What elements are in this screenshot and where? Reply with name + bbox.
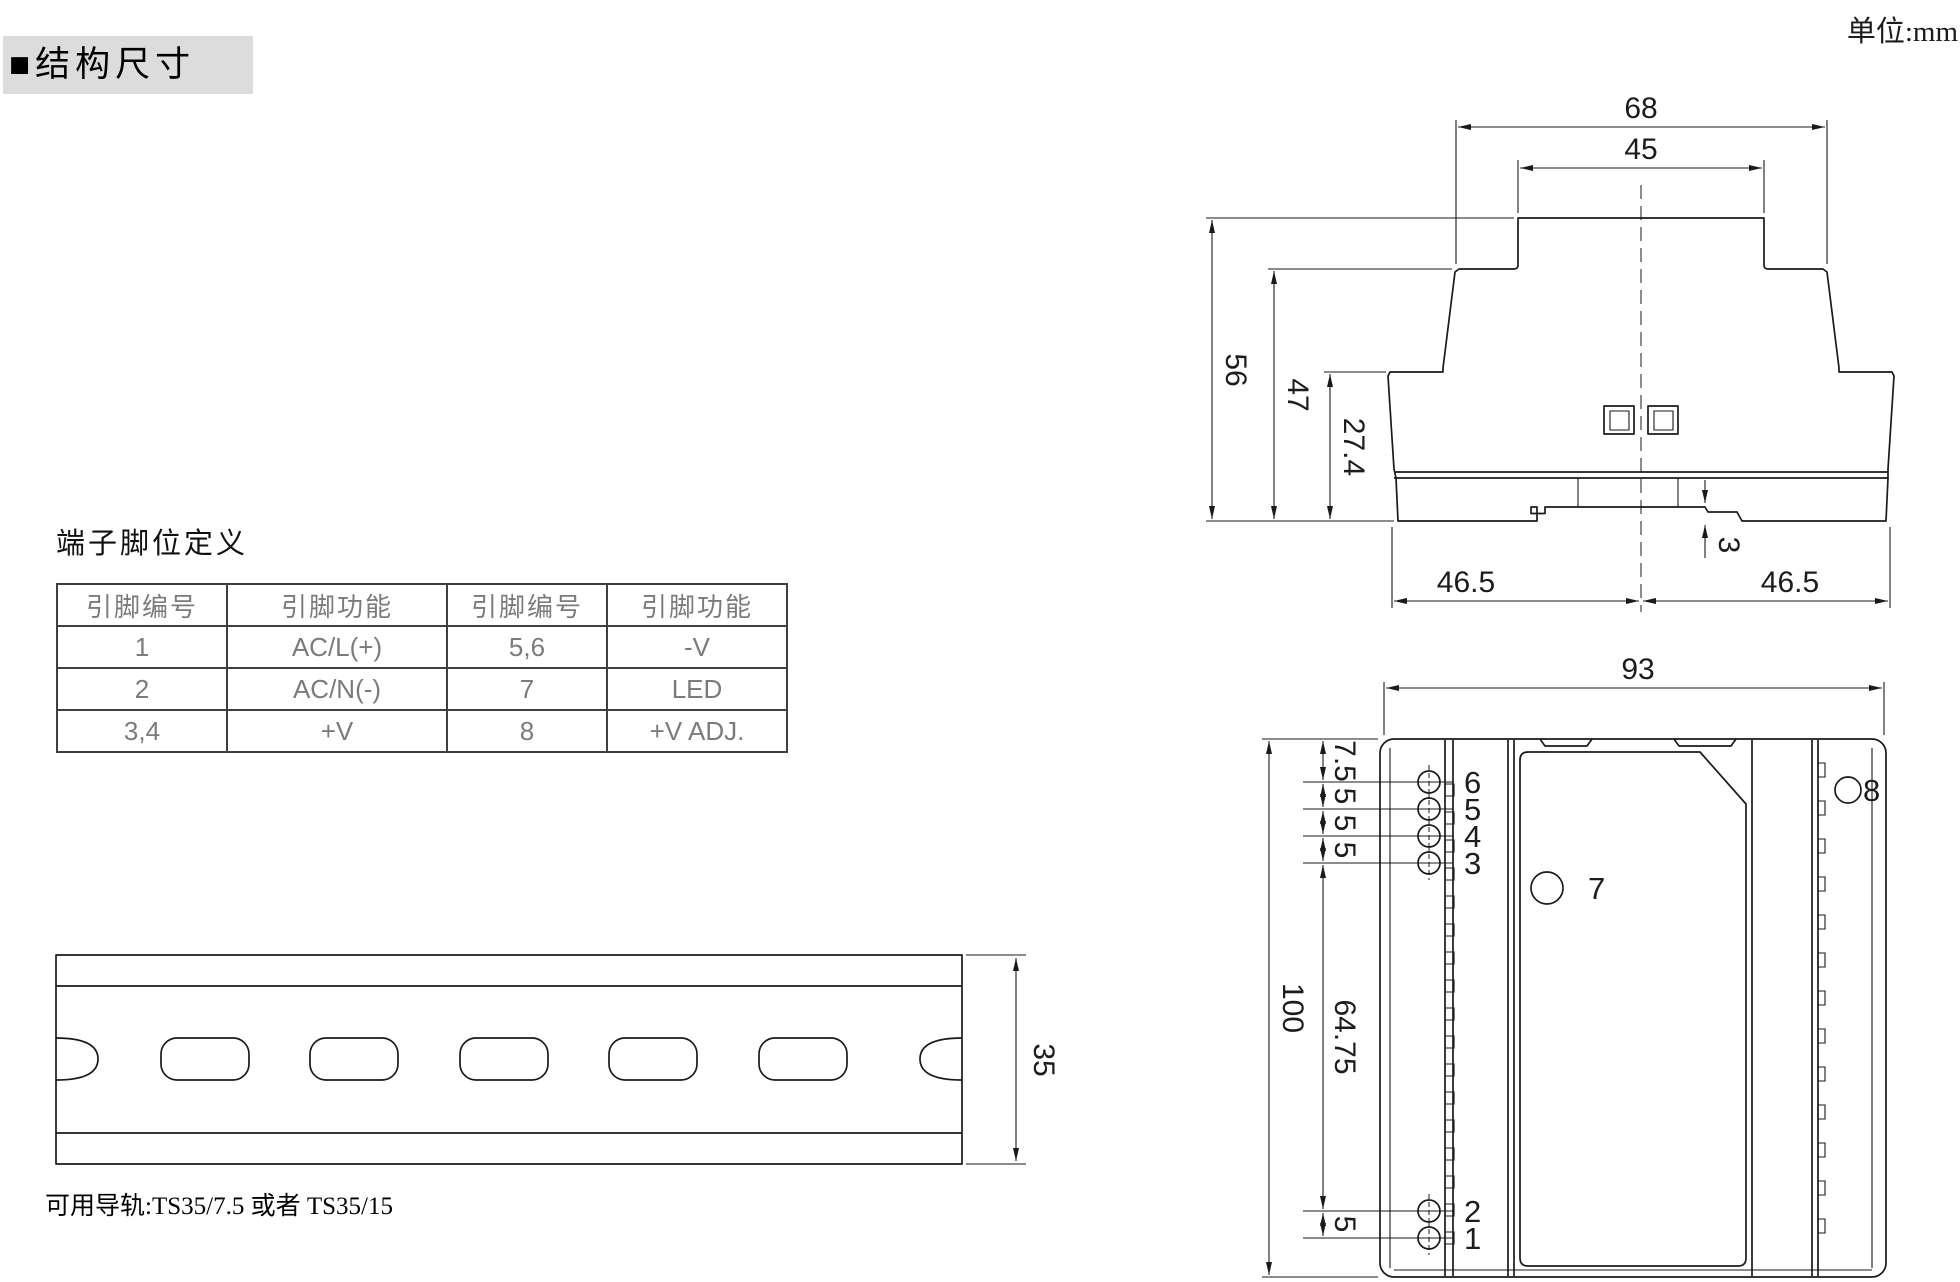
pin-label-1: 1	[1464, 1221, 1481, 1256]
vent-slot	[1818, 1219, 1825, 1233]
label-panel	[1520, 752, 1746, 1266]
rail-slots	[161, 1038, 847, 1080]
top-view-dimensions: 68 45 56 47 27.4 3 46.5	[1206, 92, 1890, 608]
table-row: 2 AC/N(-) 7 LED	[57, 668, 787, 710]
led-indicator-circle	[1531, 872, 1563, 904]
vent-slots	[1818, 763, 1825, 1233]
pin-number-cell: 8	[447, 710, 607, 752]
side-view-body	[1380, 739, 1886, 1277]
din-rail-drawing: 35	[0, 930, 1100, 1180]
col-header: 引脚编号	[447, 584, 607, 626]
dim-5a: 5	[1328, 788, 1361, 805]
vent-slot	[1818, 991, 1825, 1005]
dim-7-5: 7.5	[1328, 740, 1361, 782]
pin-function-cell: -V	[607, 626, 787, 668]
vent-slot	[1818, 953, 1825, 967]
rail-dimension-35: 35	[966, 955, 1060, 1164]
vent-slot	[1818, 839, 1825, 853]
vent-slot	[1818, 1143, 1825, 1157]
top-notch-right	[1674, 739, 1736, 746]
pin-function-cell: LED	[607, 668, 787, 710]
dim-27-4: 27.4	[1337, 418, 1370, 476]
dim-5d: 5	[1328, 1216, 1361, 1233]
rail-height-dim: 35	[1027, 1043, 1060, 1076]
rail-slot	[609, 1038, 697, 1080]
top-view-body	[1388, 185, 1894, 612]
dim-5c: 5	[1328, 842, 1361, 859]
terminal-screws	[1412, 765, 1446, 1255]
pin-number-cell: 2	[57, 668, 227, 710]
section-heading: ■结构尺寸	[3, 36, 253, 94]
rail-profile	[56, 955, 962, 1164]
vadj-circle	[1835, 777, 1861, 803]
top-notch-left	[1540, 739, 1592, 746]
pin-number-cell: 1	[57, 626, 227, 668]
side-view-drawing: 6 5 4 3 2 1 7 8 93 100	[1240, 635, 1960, 1282]
vent-slot	[1818, 1181, 1825, 1195]
pin-label-7: 7	[1588, 871, 1605, 906]
rail-slot	[161, 1038, 249, 1080]
case-outline	[1380, 739, 1886, 1277]
dim-5b: 5	[1328, 815, 1361, 832]
pin-number-cell: 5,6	[447, 626, 607, 668]
dim-100: 100	[1276, 983, 1309, 1033]
pin-function-cell: AC/N(-)	[227, 668, 447, 710]
structure-dimensions-page: ■结构尺寸 单位:mm 端子脚位定义 引脚编号 引脚功能 引脚编号 引脚功能 1…	[0, 0, 1960, 1282]
pin-definition-table: 引脚编号 引脚功能 引脚编号 引脚功能 1 AC/L(+) 5,6 -V 2 A…	[56, 583, 788, 753]
vent-slot	[1818, 1105, 1825, 1119]
dim-56: 56	[1219, 353, 1252, 386]
unit-label: 单位:mm	[1808, 8, 1958, 42]
rail-slot	[460, 1038, 548, 1080]
pin-function-cell: +V	[227, 710, 447, 752]
rail-slot	[759, 1038, 847, 1080]
rail-edge-notch-left	[56, 1038, 98, 1080]
pin-number-cell: 7	[447, 668, 607, 710]
pin-function-cell: AC/L(+)	[227, 626, 447, 668]
dim-68: 68	[1624, 92, 1657, 125]
vent-slot	[1818, 763, 1825, 777]
col-header: 引脚功能	[607, 584, 787, 626]
dim-45: 45	[1624, 133, 1657, 166]
table-row: 1 AC/L(+) 5,6 -V	[57, 626, 787, 668]
dim-46-5-left: 46.5	[1437, 566, 1495, 599]
dim-47: 47	[1281, 378, 1314, 411]
pin-label-8: 8	[1863, 773, 1880, 808]
vent-slot	[1818, 1067, 1825, 1081]
dim-46-5-right: 46.5	[1761, 566, 1819, 599]
rail-note: 可用导轨:TS35/7.5 或者 TS35/15	[45, 1186, 393, 1222]
clip-window-right-inner	[1654, 411, 1673, 430]
col-header: 引脚编号	[57, 584, 227, 626]
vent-slot	[1818, 1029, 1825, 1043]
col-header: 引脚功能	[227, 584, 447, 626]
vent-slot	[1818, 915, 1825, 929]
vent-slot	[1818, 877, 1825, 891]
pin-label-3: 3	[1464, 846, 1481, 881]
dim-93: 93	[1621, 653, 1654, 686]
top-view-drawing: 68 45 56 47 27.4 3 46.5	[940, 60, 1960, 630]
table-header-row: 引脚编号 引脚功能 引脚编号 引脚功能	[57, 584, 787, 626]
pin-number-cell: 3,4	[57, 710, 227, 752]
clip-window-left-inner	[1610, 411, 1629, 430]
dim-64-75: 64.75	[1328, 999, 1361, 1074]
dim-3: 3	[1712, 537, 1745, 554]
pin-function-cell: +V ADJ.	[607, 710, 787, 752]
table-row: 3,4 +V 8 +V ADJ.	[57, 710, 787, 752]
case-outline	[1388, 218, 1894, 521]
rail-edge-notch-right	[920, 1038, 962, 1080]
pin-table-title: 端子脚位定义	[56, 520, 248, 562]
rail-slot	[310, 1038, 398, 1080]
vent-slot	[1818, 801, 1825, 815]
